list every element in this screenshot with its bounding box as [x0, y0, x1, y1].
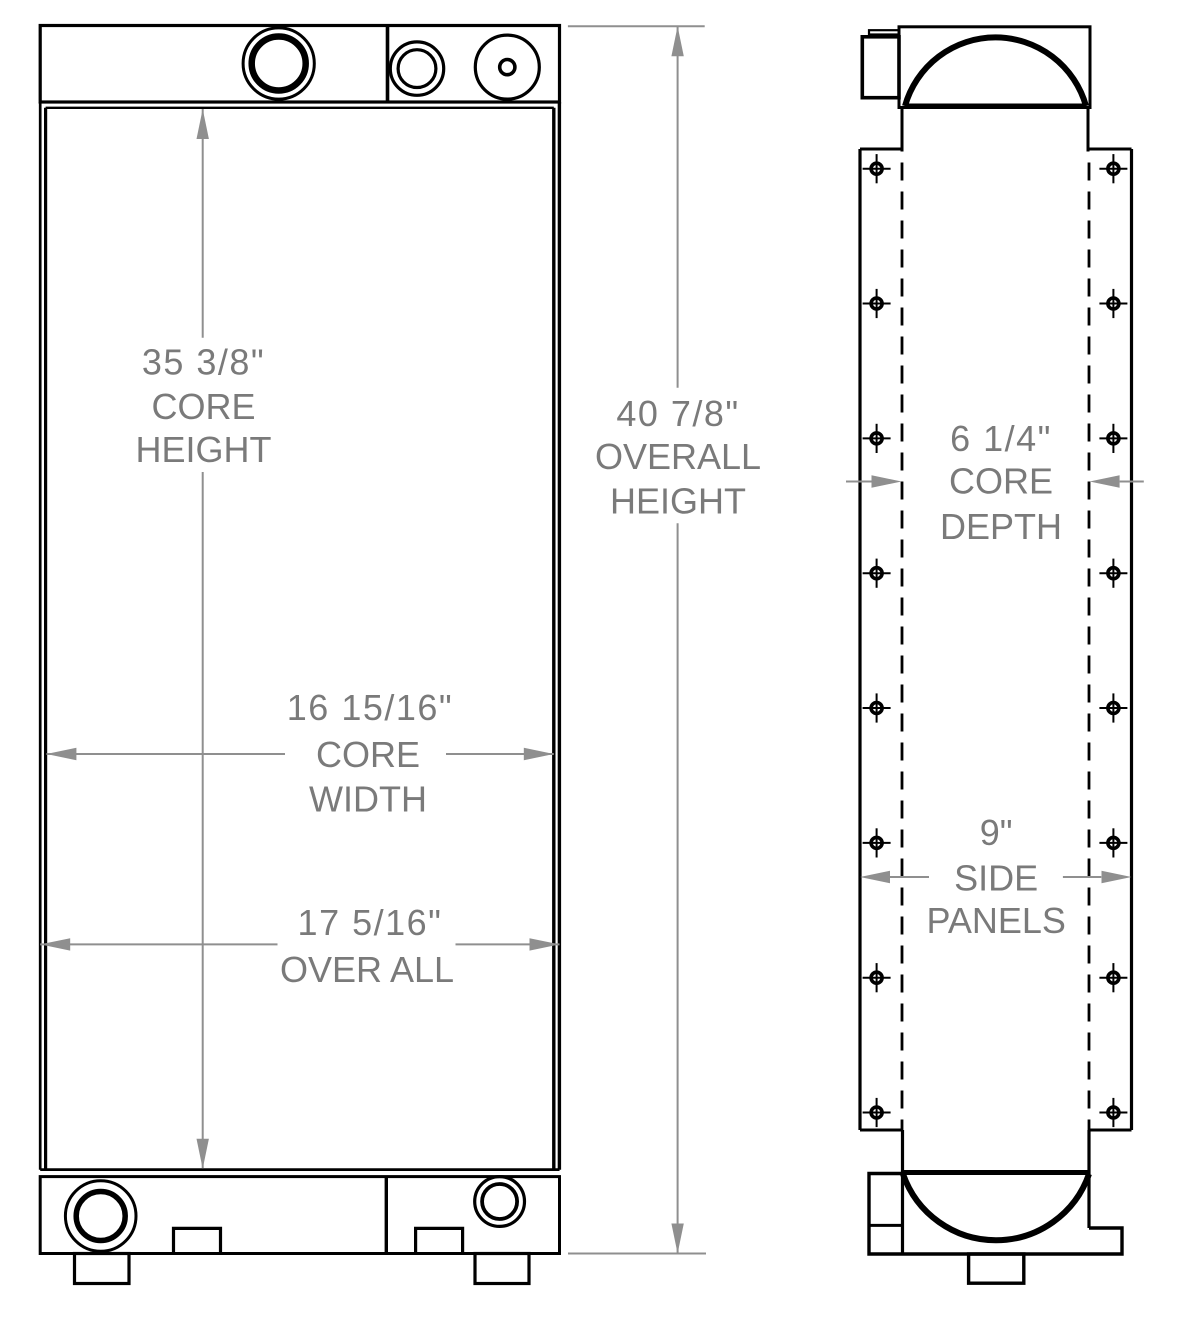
svg-text:16 15/16": 16 15/16": [287, 687, 453, 728]
svg-text:WIDTH: WIDTH: [309, 778, 427, 819]
svg-text:HEIGHT: HEIGHT: [610, 481, 746, 522]
svg-text:SIDE: SIDE: [954, 858, 1038, 899]
svg-text:CORE: CORE: [316, 734, 420, 775]
svg-text:35 3/8": 35 3/8": [142, 342, 265, 383]
svg-text:9": 9": [980, 812, 1013, 853]
svg-text:OVERALL: OVERALL: [595, 436, 761, 477]
svg-text:40 7/8": 40 7/8": [616, 393, 739, 434]
svg-text:CORE: CORE: [949, 460, 1053, 501]
svg-text:17 5/16": 17 5/16": [298, 902, 443, 943]
svg-text:OVER ALL: OVER ALL: [280, 949, 454, 990]
svg-text:6 1/4": 6 1/4": [950, 418, 1052, 459]
svg-text:DEPTH: DEPTH: [940, 506, 1062, 547]
svg-text:PANELS: PANELS: [926, 900, 1065, 941]
svg-text:CORE: CORE: [151, 386, 255, 427]
svg-text:HEIGHT: HEIGHT: [135, 429, 271, 470]
